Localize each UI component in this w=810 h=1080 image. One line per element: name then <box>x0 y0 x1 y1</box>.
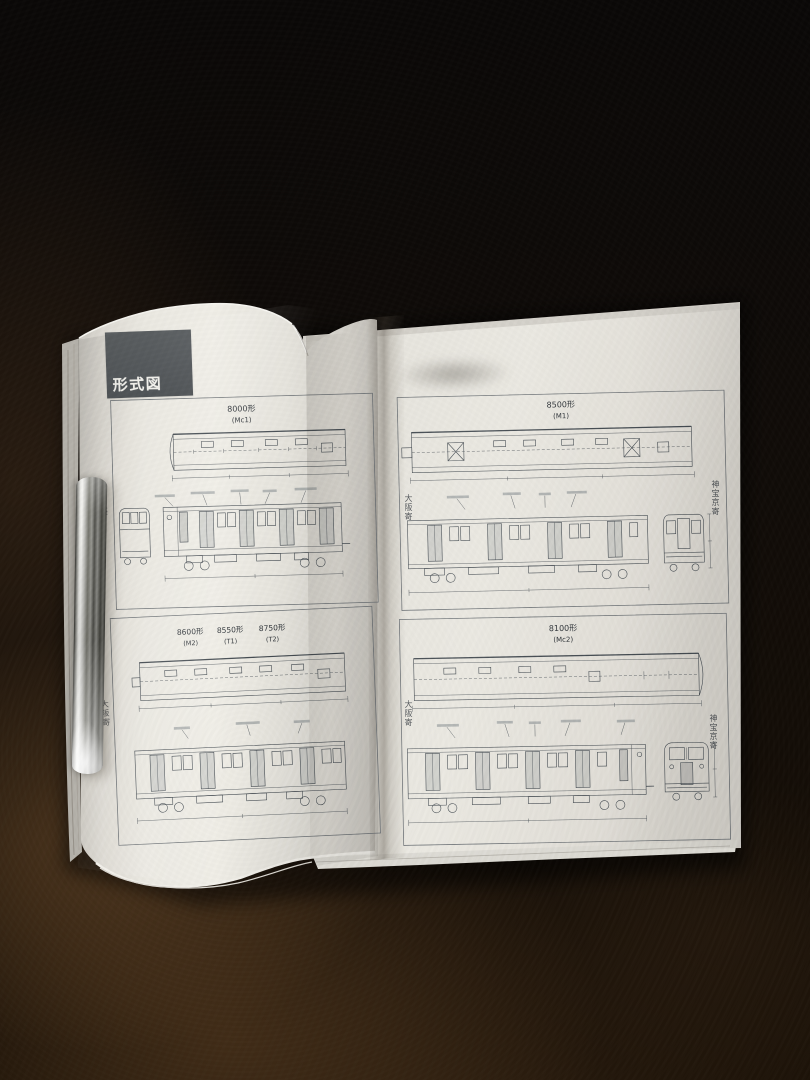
annotation-marks <box>447 491 587 510</box>
diagram-panel-8000: 8000形 (Mc1) <box>110 393 379 610</box>
panel-title-model: 8600形 <box>177 627 204 637</box>
roof-plan-drawing <box>131 653 348 712</box>
panel-title-class: (T1) <box>224 637 237 646</box>
chrome-pen <box>72 477 108 774</box>
end-view-drawing <box>119 508 151 565</box>
side-label-shin-takara-kyo: 神宝京寄 <box>711 480 719 516</box>
panel-title-class: (Mc1) <box>232 416 252 425</box>
roof-plan-drawing <box>412 653 704 712</box>
diagram-panel-8600-8550-8750: 8600形 (M2) 8550形 (T1) 8750形 (T2) <box>110 606 381 846</box>
side-elevation-drawing <box>135 741 348 824</box>
roof-plan-drawing <box>170 429 349 481</box>
pantograph-mark <box>448 443 464 461</box>
section-label-box: 形式図 <box>105 330 193 399</box>
panel-title-model: 8100形 <box>549 624 578 634</box>
panel-title-class: (M1) <box>553 412 569 420</box>
roof-plan-drawing <box>401 426 694 484</box>
panel-title-class: (M2) <box>183 639 198 648</box>
annotation-marks <box>174 719 310 739</box>
section-label: 形式図 <box>112 373 162 396</box>
end-view-drawing <box>663 514 712 572</box>
photo-open-book: 形式図 8000形 (Mc1) <box>0 0 810 1080</box>
diagram-panel-8500: 8500形 (M1) <box>397 390 730 611</box>
end-view-drawing <box>664 742 717 800</box>
panel-title-class: (Mc2) <box>553 636 573 644</box>
panel-title-class: (T2) <box>266 635 279 644</box>
panel-title-model: 8500形 <box>547 400 576 410</box>
annotation-marks <box>437 719 635 739</box>
side-label-shin-takara-kyo: 神宝京寄 <box>709 714 717 750</box>
side-label-osaka: 大阪寄 <box>404 700 412 727</box>
panel-title-model: 8550形 <box>217 625 244 635</box>
diagram-panel-8100: 8100形 (Mc2) <box>399 613 731 846</box>
side-elevation-drawing <box>407 744 654 826</box>
side-elevation-drawing <box>119 502 351 582</box>
side-elevation-drawing <box>407 515 649 595</box>
panel-title-model: 8000形 <box>227 404 256 414</box>
side-label-osaka: 大阪寄 <box>404 494 412 521</box>
panel-title-model: 8750形 <box>259 623 286 633</box>
